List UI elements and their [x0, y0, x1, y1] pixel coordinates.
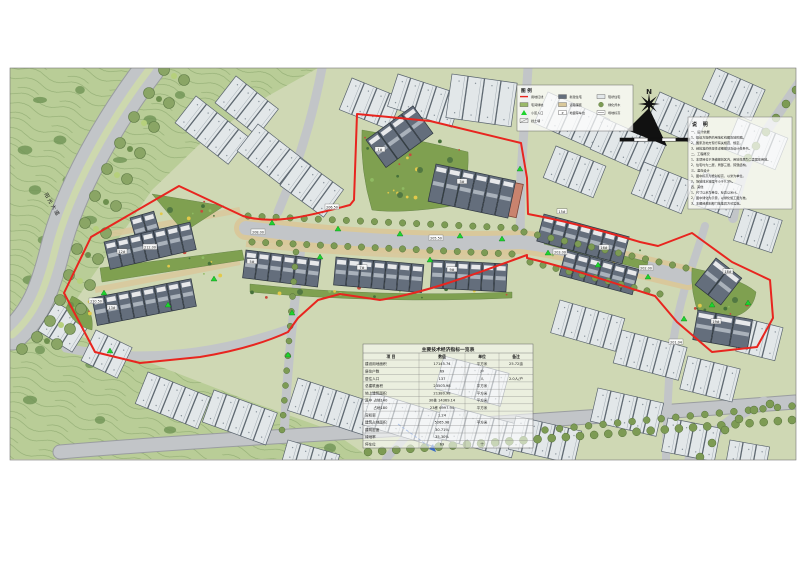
- street-tree: [672, 414, 679, 421]
- table-cell: 平方米: [477, 361, 488, 366]
- garden-tree: [732, 297, 738, 303]
- boulevard-tree: [85, 280, 96, 291]
- table-cell: 停车位: [365, 442, 376, 447]
- boulevard-tree: [55, 295, 66, 306]
- street-tree: [440, 248, 446, 254]
- boulevard-tree: [129, 112, 140, 123]
- street-tree: [331, 243, 337, 249]
- table-cell: 23栋 6997.94: [430, 405, 455, 410]
- boulevard-tree: [93, 254, 104, 265]
- table-cell: 137: [439, 377, 446, 381]
- street-tree: [760, 418, 768, 426]
- paving-swatch: [559, 103, 567, 107]
- boulevard-tree: [80, 218, 91, 229]
- table-cell: 平方米: [477, 420, 488, 425]
- street-tree: [279, 427, 285, 433]
- street-tree: [633, 428, 641, 436]
- street-tree: [590, 431, 598, 439]
- street-tree: [548, 235, 554, 241]
- street-tree: [548, 434, 556, 442]
- map-scene: 212.00210.50208.00206.50205.50203.00202.…: [10, 65, 800, 476]
- spot-elevation-label: 201.04: [669, 339, 683, 345]
- table-cell: 30.71%: [435, 428, 449, 432]
- street-tree: [716, 410, 723, 417]
- street-tree: [647, 427, 655, 435]
- building-number-label: 13#: [107, 305, 117, 310]
- note-line: 1、本项目位于场镇规划区内，用地性质为二类居住用地。: [691, 157, 770, 162]
- planting-dot: [730, 313, 732, 315]
- planting-dot: [200, 210, 203, 213]
- table-cell: 总建筑面积: [365, 383, 383, 388]
- street-tree: [358, 244, 364, 250]
- note-line: 四、其他: [691, 184, 703, 189]
- building-label-chip: [375, 263, 384, 268]
- median-shrub: [85, 252, 91, 258]
- street-tree: [788, 416, 796, 424]
- street-tree: [774, 417, 782, 425]
- planting-dot: [438, 140, 442, 144]
- street-tree: [789, 403, 796, 410]
- street-tree: [730, 408, 737, 415]
- street-tree: [643, 417, 650, 424]
- boulevard-tree: [45, 316, 56, 327]
- vegetation-blob: [75, 86, 85, 94]
- street-tree: [290, 241, 296, 247]
- street-tree: [283, 383, 289, 389]
- planting-dot: [203, 201, 205, 203]
- planting-dot: [696, 308, 698, 310]
- street-tree: [304, 241, 310, 247]
- building-label-chip: [337, 260, 346, 265]
- table-cell: 35.30%: [435, 435, 449, 439]
- table-cell: 17145.74: [433, 362, 451, 366]
- boulevard-tree: [17, 344, 28, 355]
- table-title: 主要技术经济指标一览表: [422, 346, 475, 353]
- street-tree: [658, 415, 665, 422]
- street-tree: [571, 424, 578, 431]
- street-tree: [661, 426, 669, 434]
- existing-building-row: [446, 74, 517, 127]
- planting-dot: [189, 257, 191, 259]
- table-cell: 建筑占地面积: [365, 420, 387, 425]
- street-tree: [364, 448, 372, 456]
- legend-item: 场地标高: [597, 110, 620, 115]
- vegetation-blob: [54, 136, 67, 145]
- table-cell: 5265.98: [435, 421, 451, 425]
- median-shrub: [156, 96, 162, 102]
- new-building-unit: [334, 257, 348, 286]
- spot-elevation-value: 205.50: [430, 236, 442, 240]
- building-number-label: 3#: [457, 179, 467, 184]
- street-tree: [293, 249, 299, 255]
- new-building-unit: [443, 261, 456, 290]
- planting-dot: [210, 261, 212, 263]
- street-tree: [782, 100, 790, 108]
- new-building-unit: [409, 264, 423, 293]
- table-cell: 其中 占地140: [365, 398, 388, 403]
- vegetation-blob: [35, 346, 45, 354]
- building-number-text: 1#: [378, 148, 383, 152]
- spot-elevation-value: 212.00: [144, 245, 156, 249]
- legend-item: 道路铺装: [559, 102, 582, 107]
- street-tree: [512, 225, 518, 231]
- planting-dot: [694, 307, 697, 310]
- median-shrub: [127, 146, 133, 152]
- table-cell: 25.72亩: [509, 361, 523, 366]
- notes-panel: 一、设计依据1、建设方提供的用地红线图及地形图。2、国家及地方现行有关规范、规定…: [688, 117, 792, 209]
- table-cell: 个: [480, 442, 484, 447]
- street-tree: [498, 224, 504, 230]
- building-label-chip: [471, 265, 480, 270]
- legend-title: 图 例: [521, 87, 532, 94]
- street-tree: [656, 259, 662, 265]
- street-tree: [345, 243, 351, 249]
- building-label-chip: [433, 263, 442, 268]
- table-cell: 建筑密度: [365, 427, 380, 432]
- planting-dot: [387, 192, 389, 194]
- legend-item: 新建住宅: [559, 94, 582, 99]
- planting-dot: [250, 290, 254, 294]
- scale-bar-segment: [648, 138, 662, 141]
- planting-dot: [201, 204, 205, 208]
- spot-elevation-label: 202.00: [639, 265, 653, 271]
- boulevard-tree: [65, 324, 76, 335]
- median-shrub: [103, 199, 109, 205]
- boulevard-tree: [159, 65, 170, 76]
- planting-dot: [370, 178, 374, 182]
- table-header-cell: 项 目: [387, 354, 396, 359]
- building-number-label: 16#: [599, 245, 609, 250]
- note-line: 二、工程概况: [691, 151, 710, 156]
- planting-dot: [458, 149, 460, 151]
- street-tree: [399, 220, 405, 226]
- street-tree: [509, 251, 515, 257]
- building-number-label: 9#: [447, 267, 457, 272]
- legend-item: 挡土墙: [520, 118, 540, 123]
- planting-dot: [209, 209, 212, 212]
- note-line: 1、图中标高为绝对标高，以米为单位。: [691, 173, 746, 178]
- table-cell: 69: [440, 370, 445, 374]
- planting-dot: [421, 297, 423, 299]
- street-tree: [600, 421, 607, 428]
- street-tree: [615, 250, 621, 256]
- planting-dot: [167, 265, 170, 268]
- building-number-text: 15#: [558, 210, 565, 214]
- building-number-label: 19#: [711, 319, 721, 324]
- street-tree: [760, 405, 767, 412]
- street-tree: [735, 415, 743, 423]
- boulevard-tree: [32, 332, 43, 343]
- street-tree: [657, 291, 663, 297]
- boulevard-tree: [72, 244, 83, 255]
- garden-tree: [397, 192, 403, 198]
- new-building-unit: [359, 259, 373, 288]
- notes-title: 说 明: [692, 121, 710, 128]
- spot-elevation-value: 201.04: [670, 340, 682, 344]
- table-header-cell: 单位: [478, 354, 486, 359]
- street-tree: [481, 250, 487, 256]
- street-tree: [766, 400, 774, 408]
- vegetation-blob: [164, 426, 176, 433]
- street-tree: [280, 412, 286, 418]
- street-tree: [343, 217, 349, 223]
- median-shrub: [58, 322, 64, 328]
- street-tree: [669, 262, 675, 268]
- legend-panel: 用地红线新建住宅现状住宅宅间绿地道路铺装绿化乔木小区入口P地面停车位场地标高挡土…: [517, 85, 633, 131]
- table-header-cell: 备注: [511, 354, 520, 359]
- building-number-text: 12#: [118, 250, 125, 254]
- legend-label: 场地标高: [608, 110, 620, 115]
- note-line: 三、竖向设计: [691, 168, 710, 173]
- building-number-label: 1#: [375, 147, 385, 152]
- legend-label: 现状住宅: [608, 94, 620, 99]
- street-tree: [286, 338, 292, 344]
- legend-label: 地面停车位: [570, 110, 585, 115]
- boulevard-tree: [164, 98, 175, 109]
- legend-label: 用地红线: [531, 94, 543, 99]
- table-cell: 平方米: [477, 405, 488, 410]
- street-tree: [561, 238, 567, 244]
- table-cell: 30栋 14369.14: [429, 398, 456, 403]
- street-tree: [750, 406, 758, 414]
- street-tree: [413, 220, 419, 226]
- boulevard-tree: [90, 191, 101, 202]
- table-cell: 地上建筑面积: [365, 390, 387, 395]
- street-tree: [281, 397, 287, 403]
- median-shrub: [93, 226, 99, 232]
- spot-elevation-label: 208.00: [251, 229, 265, 235]
- street-tree: [687, 412, 694, 419]
- legend-label: 绿化乔木: [608, 102, 620, 107]
- building-number-label: 12#: [117, 249, 127, 254]
- note-line: 3、经批准的修建性详细规划及设计任务书。: [691, 146, 752, 151]
- note-line: 3、本图经规划部门批准后方可实施。: [691, 201, 742, 206]
- svg-text:P: P: [562, 111, 564, 115]
- street-tree: [534, 232, 540, 238]
- table-cell: 69: [440, 443, 445, 447]
- street-tree: [642, 256, 648, 262]
- boulevard-tree: [115, 138, 126, 149]
- planting-dot: [88, 312, 92, 316]
- street-tree: [291, 279, 297, 285]
- vegetation-blob: [95, 416, 105, 424]
- scale-bar-segment: [620, 138, 634, 141]
- planting-dot: [218, 274, 222, 278]
- site-plan-canvas: 212.00210.50208.00206.50205.50203.00202.…: [0, 0, 800, 566]
- building-number-label: 15#: [557, 209, 567, 214]
- median-shrub: [114, 172, 120, 178]
- table-cell: 1.24: [438, 413, 447, 417]
- building-number-text: 18#: [724, 270, 731, 274]
- street-tree: [413, 246, 419, 252]
- planting-dot: [333, 290, 336, 293]
- planting-dot: [278, 292, 282, 296]
- planting-dot: [402, 187, 405, 190]
- median-shrub: [77, 278, 83, 284]
- street-tree: [315, 216, 321, 222]
- legend-item: P地面停车位: [559, 110, 585, 115]
- indicator-table: 项 目数值单位备注建设用地面积17145.74平方米25.72亩居住户数69户居…: [363, 344, 533, 448]
- note-line: 2、场地排水坡度不小于0.3%。: [691, 179, 735, 184]
- building-number-text: 7#: [360, 266, 365, 270]
- boulevard-tree: [52, 339, 63, 350]
- note-line: 2、图中绿化为示意，以绿化施工图为准。: [691, 195, 749, 200]
- legend-item: 绿化乔木: [599, 102, 621, 107]
- boulevard-tree: [122, 174, 133, 185]
- new-house-swatch: [559, 95, 567, 99]
- street-tree: [262, 239, 268, 245]
- note-line: 2、住宅均为二层，局部三层，砖混结构。: [691, 162, 749, 167]
- boulevard-tree: [149, 122, 160, 133]
- street-tree: [357, 218, 363, 224]
- street-tree: [604, 430, 612, 438]
- legend-item: 现状住宅: [597, 94, 620, 99]
- building-label-chip: [458, 264, 467, 269]
- tree-swatch: [599, 102, 604, 107]
- median-shrub: [44, 338, 50, 344]
- street-tree: [468, 249, 474, 255]
- building-number-text: 13#: [108, 306, 115, 310]
- street-tree: [495, 250, 501, 256]
- garden-tree: [167, 207, 173, 213]
- planting-dot: [409, 153, 412, 156]
- street-tree: [585, 422, 592, 429]
- street-tree: [629, 253, 635, 259]
- legend-item: 小区入口: [521, 110, 543, 115]
- planting-dot: [364, 137, 366, 139]
- building-number-text: 3#: [460, 180, 465, 184]
- street-tree: [746, 419, 754, 427]
- street-tree: [534, 435, 542, 443]
- legend-label: 挡土墙: [531, 118, 540, 123]
- planting-dot: [698, 304, 702, 308]
- spot-elevation-value: 210.50: [90, 299, 102, 303]
- planting-dot: [187, 217, 191, 221]
- spot-elevation-value: 208.00: [252, 230, 264, 234]
- note-line: 1、建设方提供的用地红线图及地形图。: [691, 135, 746, 140]
- note-line: 1、尺寸以米为单位，标高以米计。: [691, 190, 739, 195]
- table-cell: 建设用地面积: [365, 361, 387, 366]
- planting-dot: [203, 273, 205, 275]
- boulevard-tree: [76, 304, 87, 315]
- table-cell: 人: [480, 376, 484, 381]
- planting-dot: [192, 213, 194, 215]
- building-label-chip: [400, 265, 409, 270]
- street-tree: [542, 427, 549, 434]
- street-tree: [721, 426, 729, 434]
- building-number-text: 5#: [250, 260, 255, 264]
- vegetation-blob: [33, 97, 47, 103]
- spot-elevation-value: 206.50: [326, 205, 338, 209]
- street-tree: [284, 368, 290, 374]
- new-building-unit: [494, 263, 507, 292]
- spot-elevation-value: 202.00: [640, 266, 652, 270]
- planting-dot: [265, 296, 268, 299]
- street-tree: [576, 432, 584, 440]
- planting-dot: [366, 147, 369, 150]
- spot-elevation-label: 212.00: [143, 244, 157, 250]
- garden-tree: [417, 167, 423, 173]
- new-building-unit: [372, 260, 386, 289]
- street-tree: [556, 425, 563, 432]
- street-tree: [399, 246, 405, 252]
- street-tree: [484, 224, 490, 230]
- planting-dot: [506, 294, 508, 296]
- planting-dot: [160, 212, 163, 215]
- planting-dot: [73, 307, 75, 309]
- note-line: 一、设计依据: [691, 129, 710, 134]
- boulevard-tree: [102, 164, 113, 175]
- spot-elevation-value: 203.00: [554, 250, 566, 254]
- street-tree: [329, 217, 335, 223]
- table-cell: 户: [480, 369, 484, 374]
- table-cell: 平方米: [477, 383, 488, 388]
- table-header-cell: 数值: [437, 354, 446, 359]
- table-cell: 居住人口: [365, 376, 380, 381]
- table-cell: 23503.98: [433, 384, 451, 388]
- street-tree: [276, 240, 282, 246]
- planting-dot: [396, 175, 399, 178]
- building-label-chip: [413, 266, 422, 271]
- street-tree: [708, 439, 716, 447]
- boulevard-tree: [179, 75, 190, 86]
- legend-label: 新建住宅: [570, 94, 582, 99]
- building-number-label: 5#: [247, 259, 257, 264]
- new-building-unit: [384, 261, 398, 290]
- garden-tree: [447, 157, 453, 163]
- boulevard-tree: [144, 88, 155, 99]
- planting-dot: [398, 163, 400, 165]
- retaining-swatch: [520, 119, 528, 123]
- planting-dot: [728, 306, 730, 308]
- legend-label: 道路铺装: [570, 102, 582, 107]
- street-tree: [442, 222, 448, 228]
- street-tree: [675, 425, 683, 433]
- street-tree: [292, 264, 298, 270]
- planting-dot: [723, 307, 727, 311]
- vegetation-blob: [18, 145, 33, 154]
- building-number-label: 18#: [723, 269, 733, 274]
- legend-box: [517, 85, 633, 131]
- legend-item: 宅间绿地: [520, 102, 543, 107]
- building-number-text: 9#: [450, 268, 455, 272]
- existing-house-swatch: [597, 95, 605, 99]
- table-cell: 21380.98: [433, 391, 451, 395]
- table-cell: 平方米: [477, 390, 488, 395]
- table-cell: 居住户数: [365, 369, 380, 374]
- planting-dot: [328, 290, 331, 293]
- street-tree: [372, 244, 378, 250]
- boulevard-tree: [111, 201, 122, 212]
- planting-dot: [639, 249, 641, 251]
- street-tree: [371, 218, 377, 224]
- scale-bar-segment: [662, 138, 676, 141]
- vegetation-blob: [23, 396, 37, 405]
- street-tree: [588, 244, 594, 250]
- spot-elevation-label: 205.50: [429, 235, 443, 241]
- note-line: 2、国家及地方现行有关规范、规定。: [691, 140, 742, 145]
- street-tree: [521, 229, 527, 235]
- planting-dot: [213, 215, 215, 217]
- building-number-label: 7#: [357, 265, 367, 270]
- table-box: [363, 344, 533, 448]
- master-plan-svg: 212.00210.50208.00206.50205.50203.00202.…: [0, 0, 800, 566]
- scale-bar-segment: [634, 138, 648, 141]
- building-label-chip: [387, 264, 396, 269]
- street-tree: [562, 433, 570, 441]
- planting-dot: [414, 196, 418, 200]
- vegetation-blob: [29, 185, 41, 194]
